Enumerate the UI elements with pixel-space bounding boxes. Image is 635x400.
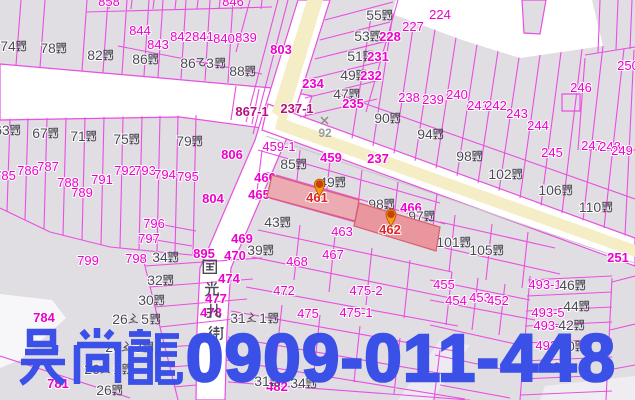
svg-text:846: 846 (222, 0, 244, 9)
svg-text:895: 895 (193, 246, 215, 261)
svg-text:102: 102 (488, 166, 512, 182)
svg-text:797: 797 (138, 231, 160, 246)
svg-text:92: 92 (318, 126, 332, 140)
svg-text:232: 232 (360, 68, 382, 83)
svg-text:459-1: 459-1 (262, 139, 295, 154)
svg-text:228: 228 (379, 29, 401, 44)
svg-text:784: 784 (33, 310, 55, 325)
svg-text:243: 243 (506, 106, 528, 121)
svg-text:843: 843 (147, 37, 169, 52)
svg-text:239: 239 (422, 92, 444, 107)
svg-text:94: 94 (417, 126, 433, 142)
svg-text:82: 82 (87, 47, 103, 63)
svg-text:493-1: 493-1 (528, 277, 561, 292)
svg-text:796: 796 (143, 216, 165, 231)
svg-text:794: 794 (154, 167, 176, 182)
svg-text:26: 26 (112, 311, 128, 327)
svg-text:251: 251 (607, 250, 629, 265)
svg-text:803: 803 (270, 42, 292, 57)
svg-text:101: 101 (436, 234, 460, 250)
svg-text:238: 238 (398, 90, 420, 105)
svg-text:452: 452 (487, 293, 509, 308)
svg-text:465: 465 (248, 187, 270, 202)
svg-text:240: 240 (446, 87, 468, 102)
svg-text:467: 467 (322, 247, 344, 262)
svg-text:86: 86 (132, 51, 148, 67)
svg-text:454: 454 (445, 293, 467, 308)
svg-text:841: 841 (192, 29, 214, 44)
svg-text:455: 455 (433, 277, 455, 292)
svg-text:475-2: 475-2 (349, 283, 382, 298)
svg-text:0909-011-448: 0909-011-448 (186, 321, 616, 396)
svg-text:110: 110 (579, 199, 602, 215)
svg-text:106: 106 (538, 182, 562, 198)
svg-text:44: 44 (563, 298, 579, 314)
svg-text:791: 791 (91, 172, 113, 187)
svg-text:67: 67 (32, 125, 48, 141)
svg-text:227: 227 (402, 19, 424, 34)
svg-text:53: 53 (354, 28, 370, 44)
svg-text:244: 244 (527, 118, 549, 133)
svg-text:75: 75 (113, 131, 129, 147)
svg-text:468: 468 (286, 254, 308, 269)
svg-text:88: 88 (229, 63, 245, 79)
svg-text:806: 806 (221, 147, 243, 162)
svg-text:475-1: 475-1 (339, 305, 372, 320)
svg-text:858: 858 (98, 0, 120, 9)
svg-text:86: 86 (180, 55, 196, 71)
svg-text:795: 795 (177, 169, 199, 184)
svg-text:246: 246 (570, 80, 592, 95)
svg-text:787: 787 (37, 159, 59, 174)
svg-text:32: 32 (147, 272, 163, 288)
svg-text:79: 79 (176, 133, 192, 149)
svg-text:798: 798 (125, 251, 147, 266)
svg-text:26: 26 (96, 382, 112, 398)
svg-text:71: 71 (70, 128, 86, 144)
svg-text:55: 55 (366, 7, 382, 23)
svg-text:472: 472 (273, 283, 295, 298)
svg-text:46: 46 (559, 277, 575, 293)
svg-text:98: 98 (456, 148, 472, 164)
svg-text:231: 231 (367, 49, 389, 64)
svg-text:43: 43 (264, 214, 280, 230)
svg-text:5: 5 (141, 311, 149, 327)
svg-text:90: 90 (374, 110, 390, 126)
svg-text:459: 459 (320, 150, 342, 165)
svg-text:786: 786 (17, 163, 39, 178)
svg-text:793: 793 (134, 163, 156, 178)
svg-text:242: 242 (485, 98, 507, 113)
svg-text:842: 842 (170, 29, 192, 44)
svg-text:249: 249 (611, 143, 633, 158)
svg-text:789: 789 (71, 185, 93, 200)
svg-text:51: 51 (347, 48, 363, 64)
svg-text:235: 235 (342, 96, 364, 111)
svg-text:463: 463 (331, 224, 353, 239)
svg-text:844: 844 (129, 23, 151, 38)
svg-text:224: 224 (429, 7, 451, 22)
svg-text:840: 840 (213, 31, 235, 46)
svg-text:474: 474 (218, 271, 240, 286)
svg-text:237-1: 237-1 (280, 101, 313, 116)
svg-text:85: 85 (280, 156, 296, 172)
svg-text:785: 785 (0, 168, 16, 183)
svg-text:470: 470 (224, 248, 246, 263)
svg-text:34: 34 (152, 249, 168, 265)
svg-text:39: 39 (247, 242, 263, 258)
svg-text:839: 839 (235, 30, 257, 45)
svg-text:237: 237 (367, 151, 389, 166)
svg-text:105: 105 (469, 242, 493, 258)
svg-text:867-1: 867-1 (235, 104, 268, 119)
svg-text:792: 792 (114, 163, 136, 178)
svg-text:245: 245 (541, 145, 563, 160)
svg-text:475: 475 (297, 306, 319, 321)
svg-text:3: 3 (206, 55, 214, 71)
svg-text:250: 250 (617, 58, 635, 73)
svg-text:30: 30 (138, 292, 154, 308)
svg-text:74: 74 (0, 38, 16, 54)
svg-text:804: 804 (202, 191, 224, 206)
svg-text:63: 63 (0, 122, 10, 138)
svg-text:49: 49 (340, 67, 356, 83)
svg-text:234: 234 (302, 76, 324, 91)
svg-text:78: 78 (40, 40, 56, 56)
svg-text:799: 799 (77, 253, 99, 268)
